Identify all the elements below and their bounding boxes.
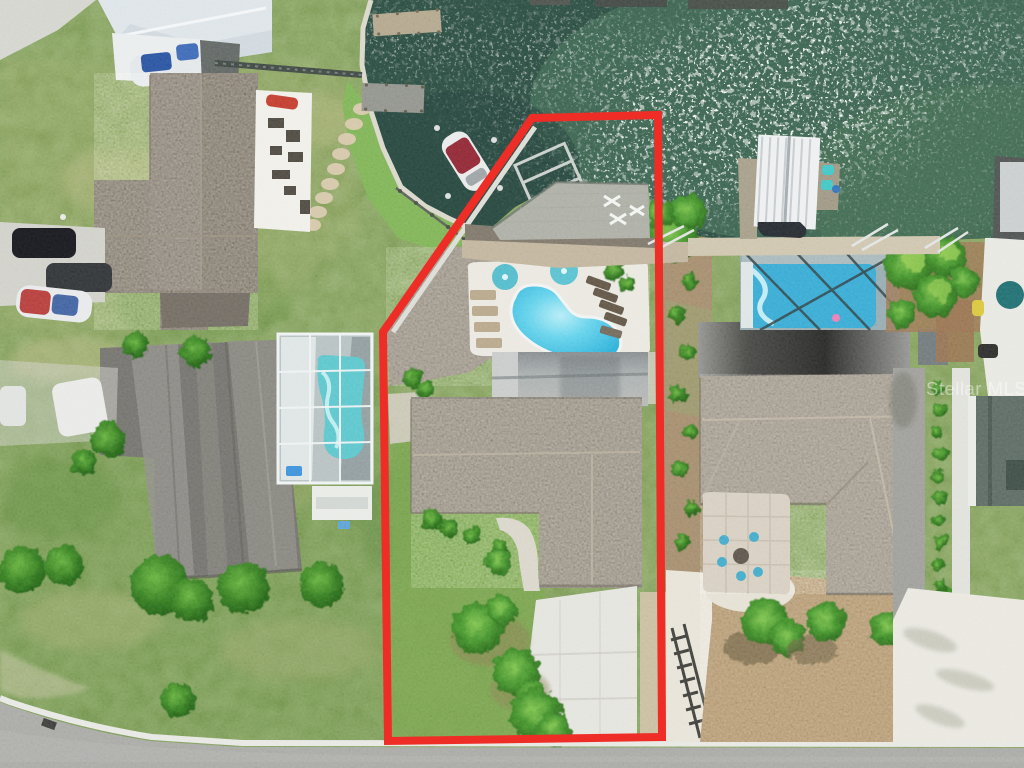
svg-text:Stellar MLS: Stellar MLS — [926, 378, 1024, 399]
